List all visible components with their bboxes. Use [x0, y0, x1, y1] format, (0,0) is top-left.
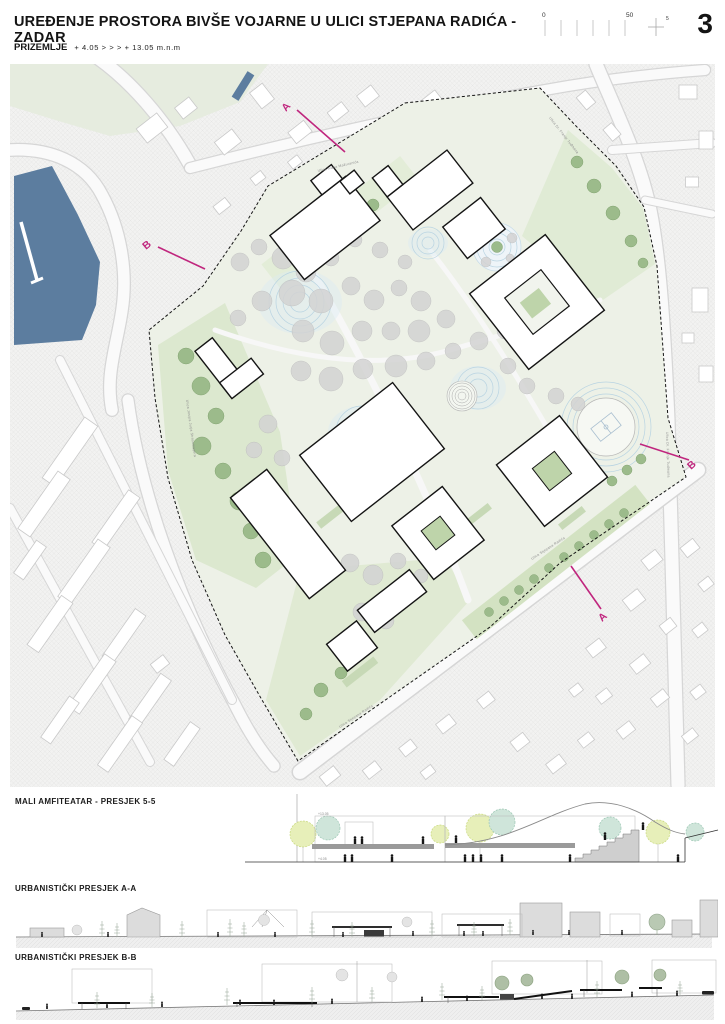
level-bottom: +4.05 [318, 857, 327, 861]
scale-fifty: 50 [626, 12, 634, 19]
scale-cross-tick [648, 18, 664, 36]
scale-ticks [545, 20, 625, 36]
level-top: +13.05 [318, 812, 329, 816]
trees [290, 809, 704, 862]
level-range: + 4.05 > > > + 13.05 m.n.m [74, 43, 180, 52]
scale-bar: 0 50 5 [538, 6, 688, 38]
level-label: PRIZEMLJE [14, 42, 67, 53]
scale-zero: 0 [542, 12, 546, 19]
level-caption: PRIZEMLJE+ 4.05 > > > + 13.05 m.n.m [14, 42, 181, 53]
section-bb-drawing [12, 955, 718, 1022]
basketball-court [577, 398, 635, 456]
car [702, 991, 714, 995]
round-tree [649, 914, 665, 930]
section-5-5-title: MALI AMFITEATAR - PRESJEK 5-5 [15, 797, 156, 806]
scale-five: 5 [666, 16, 669, 22]
sheet: UREĐENJE PROSTORA BIVŠE VOJARNE U ULICI … [0, 0, 725, 1024]
scale-bar-svg: 0 50 5 [538, 6, 688, 38]
section-aa-drawing [12, 890, 718, 950]
section-5-5-drawing: +13.05 +4.05 [240, 788, 722, 876]
amphitheater-circle [447, 381, 477, 411]
page-number: 3 [697, 8, 713, 40]
site-plan: Ulica Ivana Mažuranića Ulica Dr. Franje … [10, 64, 715, 787]
bench [22, 1007, 30, 1010]
ground-fill [16, 995, 714, 1020]
floor-slab-left [312, 844, 434, 849]
